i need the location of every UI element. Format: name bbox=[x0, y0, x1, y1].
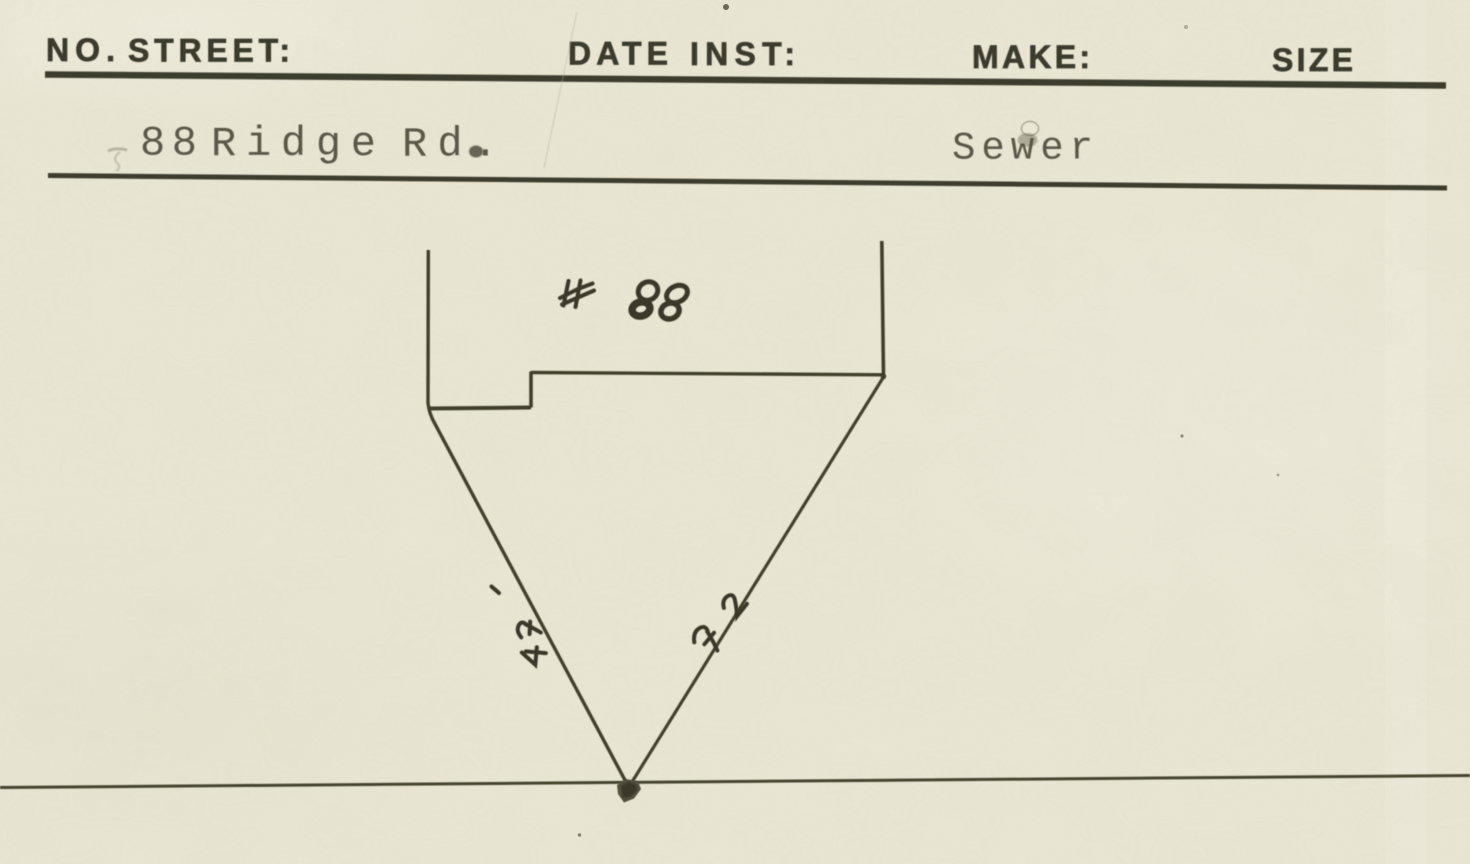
svg-text:SIZE: SIZE bbox=[1272, 42, 1353, 78]
svg-text:MAKE:: MAKE: bbox=[972, 39, 1090, 75]
svg-text:Rd.: Rd. bbox=[402, 121, 498, 169]
svg-text:Ridge: Ridge bbox=[211, 120, 376, 168]
svg-text:Sewer: Sewer bbox=[952, 127, 1093, 171]
